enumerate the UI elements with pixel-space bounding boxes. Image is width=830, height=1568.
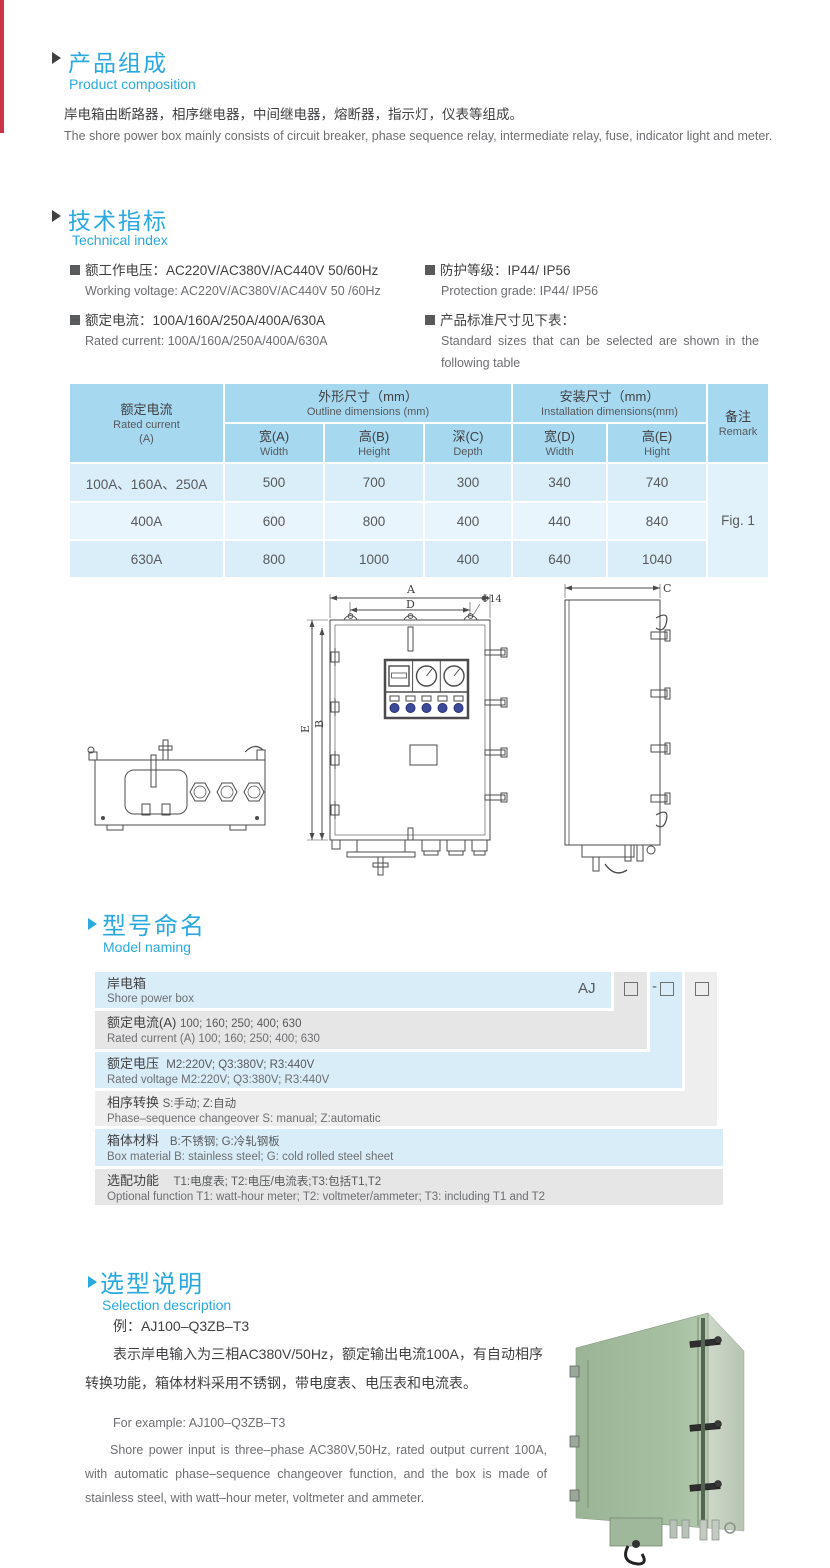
svg-text:D: D [406,598,415,611]
box-side-face [708,1313,744,1531]
side-view: C [565,582,671,873]
section-subtitle-model-naming: Model naming [103,939,191,955]
section-subtitle-selection: Selection description [102,1297,231,1313]
datasheet-page: 产品组成 Product composition 岸电箱由断路器，相序继电器，中… [0,0,830,1568]
bottom-fittings-side [582,845,655,873]
front-view: A D Φ14 E B [299,583,507,875]
table-header-installation: 安装尺寸（mm） Installation dimensions(mm) [512,383,707,423]
bottom-glands [610,1518,735,1564]
table-header-outline: 外形尺寸（mm） Outline dimensions (mm) [224,383,512,423]
bullet-square-icon [70,265,80,275]
svg-text:C: C [663,582,671,595]
model-code-box-1 [624,982,638,996]
meter-panel [385,660,468,718]
spec-standard-size-en: Standard sizes that can be selected are … [441,330,759,374]
table-header-rated-current: 额定电流 Rated current (A) [69,383,224,463]
dimension-drawing: A D Φ14 E B [85,580,705,880]
model-row-optional-function: 选配功能 T1:电度表; T2:电压/电流表;T3:包括T1,T2 Option… [95,1169,723,1205]
table-subheader-depth-c: 深(C)Depth [424,423,512,463]
composition-body-en: The shore power box mainly consists of c… [64,129,774,143]
spec-working-voltage-en: Working voltage: AC220V/AC380V/AC440V 50… [85,284,381,298]
product-photo [548,1288,806,1568]
section-title-selection: 选型说明 [100,1264,204,1299]
model-code-separator: - [652,978,657,995]
model-code-prefix: AJ [578,980,596,997]
model-naming-diagram: 岸电箱 Shore power box 额定电流(A) 100; 160; 25… [95,972,728,1205]
section-title-model-naming: 型号命名 [102,906,206,941]
model-code-box-3 [695,982,709,996]
door-clamps [485,648,507,802]
section-marker-icon [88,918,97,930]
table-remark-value: Fig. 1 [707,463,769,578]
selection-example-zh: 例：AJ100–Q3ZB–T3 [113,1316,249,1336]
selection-paragraph-zh: 表示岸电输入为三相AC380V/50Hz，额定输出电流100A，有自动相序转换功… [85,1340,543,1398]
model-row-shore-power-box: 岸电箱 Shore power box [95,972,611,1008]
section-marker-icon [52,210,61,222]
spec-rated-current-en: Rated current: 100A/160A/250A/400A/630A [85,334,328,348]
model-row-rated-current: 额定电流(A) 100; 160; 250; 400; 630 Rated cu… [95,1011,647,1049]
section-marker-icon [52,52,61,64]
svg-text:B: B [313,720,326,728]
box-front-face [576,1313,708,1528]
spec-working-voltage-zh: 额工作电压：AC220V/AC380V/AC440V 50/60Hz [70,259,378,279]
model-row-box-material: 箱体材料 B:不锈钢; G:冷轧钢板 Box material B: stain… [95,1129,723,1166]
table-subheader-height-e: 高(E)Hight [607,423,707,463]
spec-protection-zh: 防护等级：IP44/ IP56 [425,259,571,279]
spec-protection-en: Protection grade: IP44/ IP56 [441,284,598,298]
size-table: 额定电流 Rated current (A) 外形尺寸（mm） Outline … [68,382,770,579]
model-code-box-2 [660,982,674,996]
svg-text:Φ14: Φ14 [481,594,502,605]
table-subheader-width-a: 宽(A)Width [224,423,324,463]
bullet-square-icon [70,315,80,325]
table-row: 400A 600 800 400 440 840 [69,502,769,540]
composition-body-zh: 岸电箱由断路器，相序继电器，中间继电器，熔断器，指示灯，仪表等组成。 [64,103,764,123]
selection-paragraph-en: Shore power input is three–phase AC380V,… [85,1438,547,1510]
bullet-square-icon [425,315,435,325]
table-subheader-height-b: 高(B)Height [324,423,424,463]
spec-rated-current-zh: 额定电流：100A/160A/250A/400A/630A [70,309,325,329]
svg-text:E: E [299,725,312,733]
selection-example-en: For example: AJ100–Q3ZB–T3 [113,1416,285,1430]
section-subtitle-technical: Technical index [72,232,168,248]
section-title-composition: 产品组成 [68,44,168,78]
section-title-technical: 技术指标 [68,202,168,236]
bullet-square-icon [425,265,435,275]
table-subheader-width-d: 宽(D)Width [512,423,607,463]
model-row-rated-voltage: 额定电压 M2:220V; Q3:380V; R3:440V Rated vol… [95,1052,682,1088]
bottom-view [88,740,265,830]
spec-standard-size-zh: 产品标准尺寸见下表： [425,309,575,329]
model-row-phase-sequence: 相序转换 S:手动; Z:自动 Phase–sequence changeove… [95,1091,717,1126]
indicator-lights [390,696,463,713]
table-row: 100A、160A、250A 500 700 300 340 740 Fig. … [69,463,769,502]
svg-text:A: A [406,583,416,596]
section-subtitle-composition: Product composition [69,76,196,92]
table-header-remark: 备注 Remark [707,383,769,463]
left-red-stripe [0,0,4,133]
table-row: 630A 800 1000 400 640 1040 [69,540,769,578]
section-marker-icon [88,1276,97,1288]
